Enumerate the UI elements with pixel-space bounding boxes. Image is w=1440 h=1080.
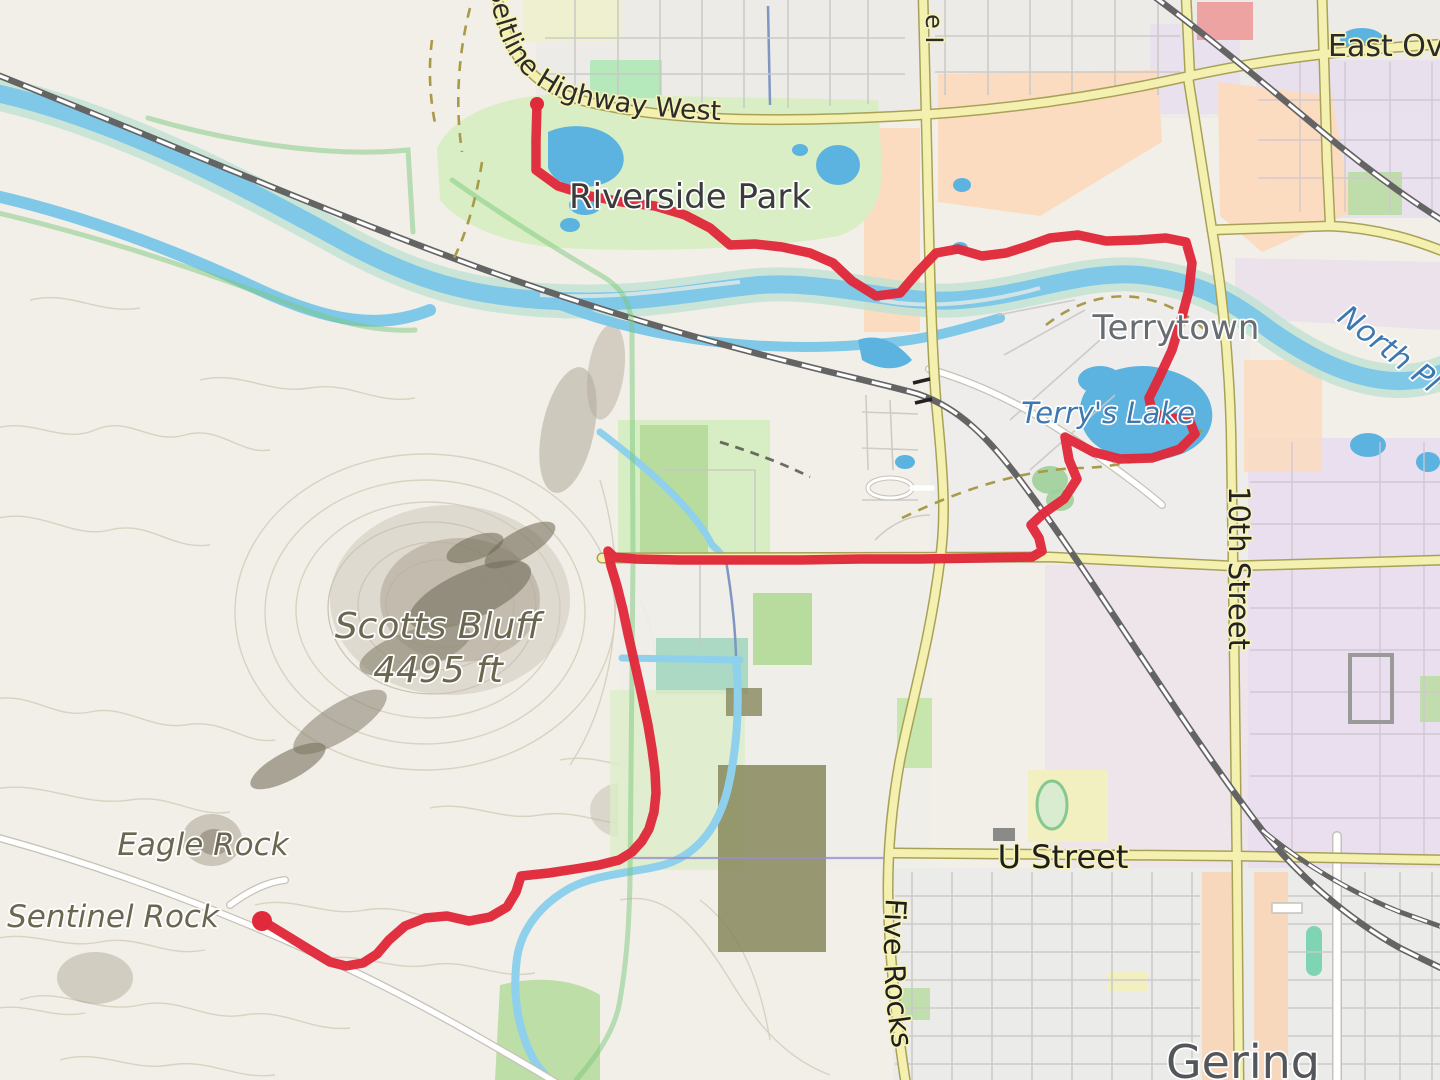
sentinel-rock-label: Sentinel Rock [7,899,220,935]
lake-label: Terry's Lake [1021,396,1195,430]
route-start-dot [530,97,544,111]
road-label-u-street: U Street [998,838,1129,876]
park-label: Riverside Park [569,177,811,217]
road-label-avenue-fragment: e I [920,14,948,43]
city-label: Gering [1166,1035,1320,1080]
route-end-dot [252,911,272,931]
town-label: Terrytown [1092,308,1260,348]
map-svg: Beltline Highway West East Ov e I Rivers… [0,0,1440,1080]
road-label-east-overland: East Ov [1328,29,1440,64]
peak-label-elevation: 4495 ft [373,650,505,691]
map-canvas[interactable]: Beltline Highway West East Ov e I Rivers… [0,0,1440,1080]
eagle-rock-label: Eagle Rock [117,827,289,863]
road-label-10th-street: 10th Street [1222,486,1256,650]
peak-label-name: Scotts Bluff [335,606,546,647]
